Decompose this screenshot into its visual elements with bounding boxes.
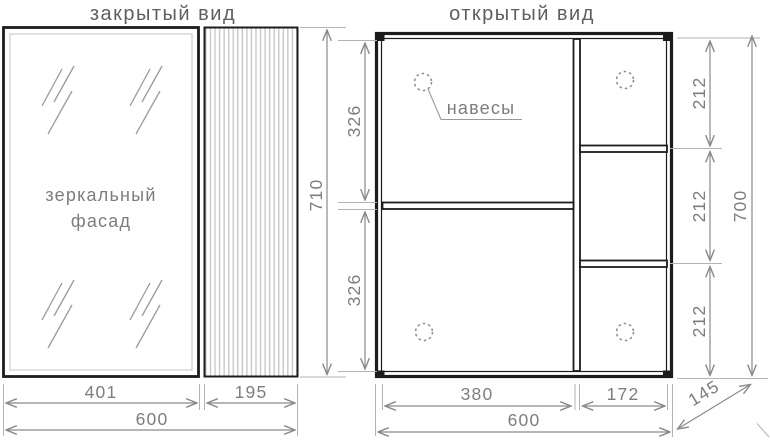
ribbed-panel — [205, 28, 298, 377]
mirror-door: зеркальный фасад — [4, 28, 199, 377]
left-shelf — [383, 203, 574, 210]
dimension-left-sections: 326 326 — [338, 41, 377, 372]
vertical-divider — [574, 39, 581, 371]
cabinet-carcass: навесы — [377, 34, 672, 378]
dimension-right-sections: 212 212 212 700 — [670, 36, 768, 379]
dim-value-section-bottom: 326 — [344, 274, 364, 307]
dim-value-shelf-3: 212 — [689, 305, 709, 338]
corner-block — [378, 35, 385, 42]
dim-value-left-width: 380 — [461, 384, 494, 404]
mirror-facade-label-line2: фасад — [71, 211, 131, 231]
dim-value-closed-total-width: 600 — [136, 409, 169, 429]
dim-value-open-height: 700 — [730, 190, 750, 223]
corner-block — [663, 371, 670, 378]
open-view-title: открытый вид — [449, 3, 595, 25]
dim-value-door-width: 401 — [85, 382, 118, 402]
dim-value-section-top: 326 — [344, 105, 364, 138]
open-view: открытый вид навесы — [338, 3, 769, 437]
corner-block — [663, 35, 670, 42]
ribbed-panel-frame — [205, 28, 298, 377]
right-shelf-lower — [580, 261, 667, 268]
dimension-open-widths: 380 172 600 145 — [376, 376, 770, 437]
mirror-facade-label-line1: зеркальный — [45, 185, 156, 205]
dim-value-shelf-1: 212 — [689, 77, 709, 110]
dim-value-height: 710 — [306, 179, 326, 212]
dimension-closed-widths: 401 195 600 — [4, 382, 298, 436]
dim-value-panel-width: 195 — [235, 382, 268, 402]
closed-view: закрытый вид зеркальный фасад 710 — [4, 3, 347, 436]
cabinet-technical-drawing: закрытый вид зеркальный фасад 710 — [0, 0, 770, 443]
dim-value-open-total-width: 600 — [508, 410, 541, 430]
right-shelf-upper — [580, 146, 667, 153]
closed-view-title: закрытый вид — [90, 3, 236, 25]
dim-value-right-width: 172 — [607, 384, 640, 404]
corner-block — [378, 371, 385, 378]
dim-value-shelf-2: 212 — [689, 190, 709, 223]
hangers-label: навесы — [447, 98, 515, 118]
